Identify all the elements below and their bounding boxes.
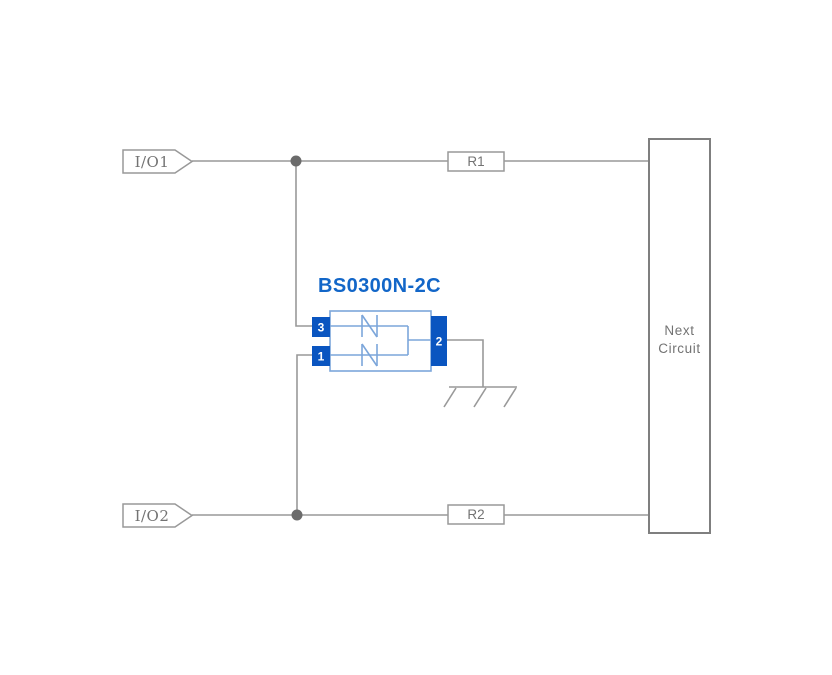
- connector-io2-label: I/O2: [135, 507, 170, 525]
- next-circuit-block: Next Circuit: [649, 139, 710, 533]
- component-body: [330, 311, 431, 371]
- pin-1-number: 1: [318, 350, 325, 364]
- component-pin-3: 3: [312, 317, 330, 337]
- junction-dot-bottom: [292, 510, 303, 521]
- resistor-r1-label: R1: [467, 154, 484, 169]
- next-circuit-label-line2: Circuit: [658, 341, 700, 356]
- wire-branch-to-pin3: [296, 161, 312, 326]
- next-circuit-label-line1: Next: [664, 323, 694, 338]
- component-pin-2: 2: [431, 316, 447, 366]
- wire-pin2-to-ground: [447, 340, 483, 387]
- resistor-r1: R1: [448, 152, 504, 171]
- ground-symbol: [444, 387, 517, 407]
- schematic-page: I/O1 I/O2 R1 R2 Next Circuit BS0300N-2C: [0, 0, 832, 675]
- component-title: BS0300N-2C: [318, 275, 441, 297]
- resistor-r2: R2: [448, 505, 504, 524]
- pin-3-number: 3: [318, 321, 325, 335]
- pin-2-number: 2: [436, 335, 443, 349]
- resistor-r2-label: R2: [467, 507, 484, 522]
- wire-branch-to-pin1: [297, 355, 312, 515]
- junction-dot-top: [291, 156, 302, 167]
- tvs-component: BS0300N-2C: [312, 275, 447, 371]
- connector-io1-label: I/O1: [135, 153, 170, 171]
- connector-io2: I/O2: [123, 504, 192, 527]
- schematic-canvas: I/O1 I/O2 R1 R2 Next Circuit BS0300N-2C: [0, 0, 832, 675]
- connector-io1: I/O1: [123, 150, 192, 173]
- component-pin-1: 1: [312, 346, 330, 366]
